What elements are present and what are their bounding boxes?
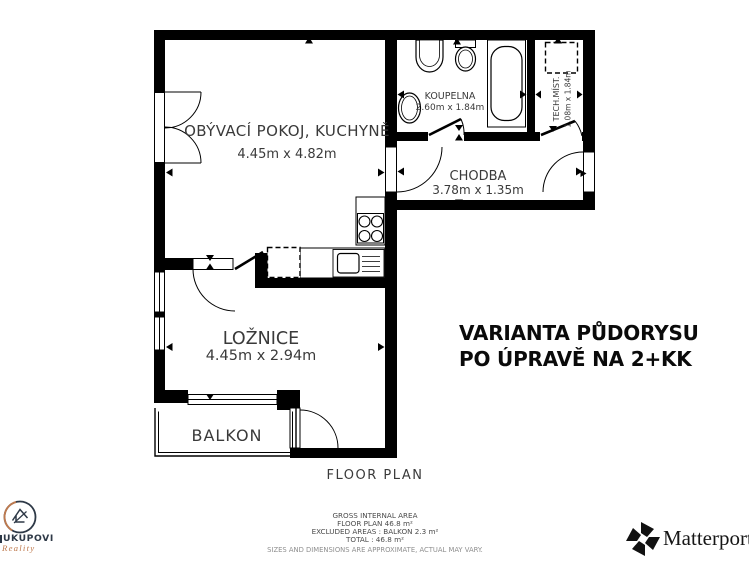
living-room-label: OBÝVACÍ POKOJ, KUCHYNĚ xyxy=(184,121,390,140)
kitchen-sink xyxy=(338,254,360,274)
tech-room-label: TECH.MÍST. xyxy=(550,77,561,123)
bedroom-label: LOŽNICE xyxy=(223,327,299,349)
wall-bedroom-top-a xyxy=(154,258,193,270)
floor-plan-page: { "plan": { "rooms": { "living": {"name"… xyxy=(0,0,749,562)
floor-plan-caption: FLOOR PLAN xyxy=(327,468,424,483)
variant-note-line2: PO ÚPRAVĚ NA 2+KK xyxy=(459,346,699,372)
marker-left xyxy=(398,91,405,99)
balcony-door-arc xyxy=(300,410,338,448)
agency-tagline: Reality xyxy=(2,543,35,553)
bathroom-label: KOUPELNA xyxy=(425,91,476,102)
toilet-bowl-inner xyxy=(459,50,473,68)
tech-door-arc xyxy=(575,121,582,136)
hallway-dims: 3.78m x 1.35m xyxy=(432,183,524,197)
marker-up xyxy=(455,134,463,141)
floor-plan-drawing: OBÝVACÍ POKOJ, KUCHYNĚ 4.45m x 4.82m KOU… xyxy=(0,0,749,562)
bedroom-door-frame xyxy=(193,259,233,270)
bathroom-dims: 2.60m x 1.84m xyxy=(416,103,485,113)
wall-bath-bottom-a xyxy=(385,132,428,141)
kitchen-fixtures xyxy=(268,197,386,278)
bathtub xyxy=(491,47,522,121)
entrance-door-frame xyxy=(584,152,595,192)
wall-bath-tech-divider xyxy=(527,40,535,132)
hallway-label: CHODBA xyxy=(450,169,507,184)
area-summary-disclaimer: SIZES AND DIMENSIONS ARE APPROXIMATE, AC… xyxy=(255,546,495,554)
wall-nook-bottom xyxy=(290,448,397,458)
wall-bedroom-right xyxy=(385,288,397,458)
living-room-dims: 4.45m x 4.82m xyxy=(237,147,336,162)
bedroom-door-arc xyxy=(193,269,235,311)
variant-note: VARIANTA PŮDORYSU PO ÚPRAVĚ NA 2+KK xyxy=(459,320,699,372)
washbasin-inner xyxy=(420,40,440,67)
balcony-label: BALKON xyxy=(191,426,262,445)
wall-top xyxy=(155,30,595,40)
marker-left xyxy=(398,168,405,176)
marker-down xyxy=(455,125,463,131)
bedroom-dims: 4.45m x 2.94m xyxy=(206,348,317,364)
fridge-placeholder xyxy=(268,248,301,278)
wall-hallway-bottom xyxy=(385,200,595,210)
burner xyxy=(372,216,383,227)
french-door-frame xyxy=(155,93,165,163)
area-summary-total: TOTAL : 46.8 m² xyxy=(255,536,495,544)
area-summary: GROSS INTERNAL AREA FLOOR PLAN 46.8 m² E… xyxy=(255,512,495,554)
marker-right xyxy=(378,343,385,351)
wall-bath-bottom-b xyxy=(464,132,540,141)
marker-left xyxy=(166,169,173,177)
burner xyxy=(359,216,370,227)
hallway-door-frame xyxy=(386,147,397,192)
matterport-wordmark: Matterport xyxy=(663,526,749,551)
bathroom-door-leaf xyxy=(429,119,461,135)
wall-left-a xyxy=(154,30,165,92)
agency-name-cutoff xyxy=(0,535,2,543)
burner xyxy=(359,231,370,242)
wall-kitchen-bottom xyxy=(263,278,397,288)
wall-bedroom-bottom-b xyxy=(277,390,300,410)
marker-left xyxy=(536,91,542,99)
marker-right xyxy=(378,169,385,177)
wall-tech-bottom-r xyxy=(582,132,595,141)
wall-left-c xyxy=(154,312,165,317)
tech-room-dims: 1.08m x 1.84m xyxy=(564,70,573,127)
wall-left-b xyxy=(154,163,165,272)
agency-logo-icon xyxy=(1,498,39,536)
matterport-logo-icon xyxy=(626,521,661,557)
balcony-door-frame xyxy=(290,408,300,448)
boiler-placeholder xyxy=(546,43,578,74)
marker-right xyxy=(577,91,583,99)
wall-bedroom-bottom-a xyxy=(154,390,188,403)
variant-note-line1: VARIANTA PŮDORYSU xyxy=(459,320,699,346)
burner xyxy=(372,231,383,242)
bathroom-fixtures xyxy=(399,40,578,127)
marker-left xyxy=(166,343,173,351)
